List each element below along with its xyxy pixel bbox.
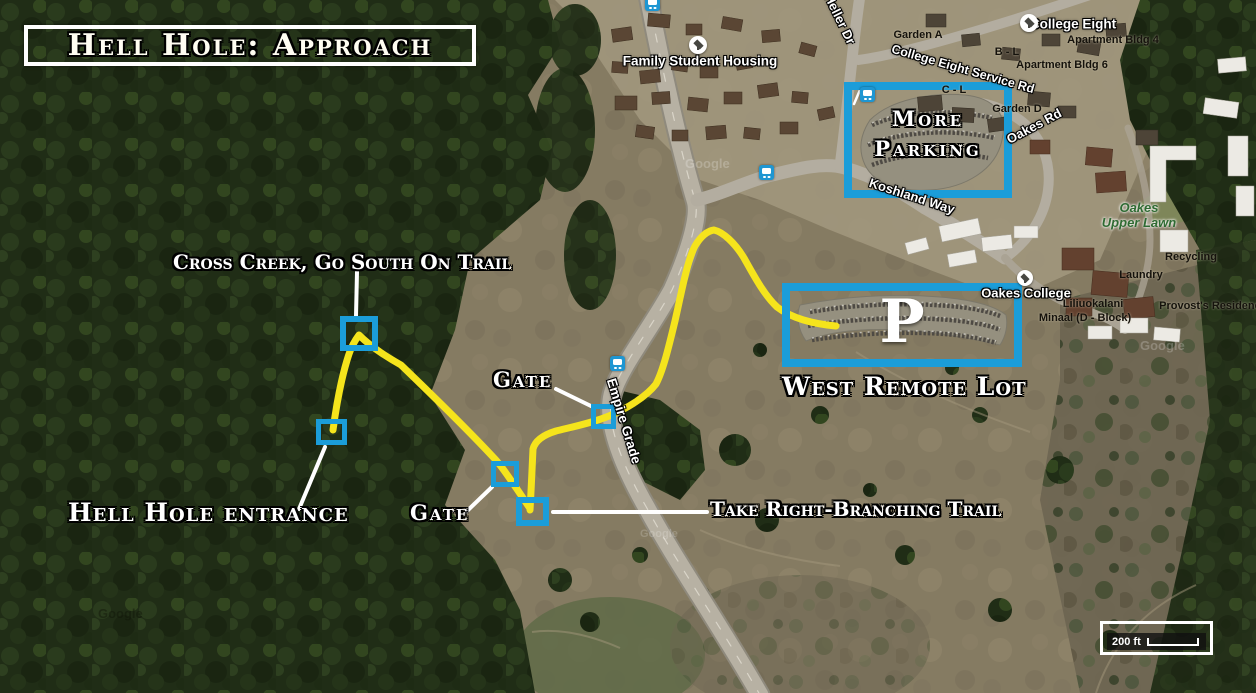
more-parking-line1: More bbox=[844, 104, 1012, 134]
watermark-text: Google bbox=[640, 528, 678, 540]
label-college-eight: College Eight bbox=[1030, 17, 1116, 32]
page-title: Hell Hole: Approach bbox=[28, 29, 472, 62]
label-apartment-bldg-6: Apartment Bldg 6 bbox=[1016, 59, 1108, 71]
west-remote-lot-label: West Remote Lot bbox=[782, 372, 1022, 401]
oakes-upper-lawn-line1: Oakes bbox=[1102, 200, 1176, 215]
oakes-upper-lawn-line2: Upper Lawn bbox=[1102, 215, 1176, 230]
label-family-student-housing: Family Student Housing bbox=[623, 54, 778, 69]
map-canvas: Google Google Google Google Hell Hole: A… bbox=[0, 0, 1256, 693]
label-liliuokalani: Liliuokalani bbox=[1063, 298, 1124, 310]
bus-stop-icon bbox=[759, 165, 774, 180]
more-parking-line2: Parking bbox=[844, 134, 1012, 164]
label-b-l: B - L bbox=[995, 46, 1019, 58]
label-minaal-d-block: Minaal (D - Block) bbox=[1039, 312, 1131, 324]
cross-creek-label: Cross Creek, Go South On Trail bbox=[173, 250, 511, 274]
scale-bracket bbox=[1147, 638, 1199, 646]
label-laundry: Laundry bbox=[1119, 269, 1162, 281]
label-provosts-residence: Provost's Residence bbox=[1159, 300, 1256, 312]
more-parking-label: More Parking bbox=[844, 104, 1012, 164]
box-cross-creek bbox=[340, 316, 378, 351]
box-trail-junction bbox=[516, 497, 549, 526]
label-oakes-college: Oakes College bbox=[981, 286, 1071, 301]
label-garden-d: Garden D bbox=[992, 103, 1042, 115]
label-recycling: Recycling bbox=[1165, 251, 1217, 263]
watermark-text: Google bbox=[685, 156, 730, 171]
watermark-text: Google bbox=[1140, 338, 1185, 353]
scale-bar-inner: 200 ft bbox=[1107, 633, 1206, 650]
graduation-cap-icon bbox=[689, 36, 707, 54]
gate-lower-label: Gate bbox=[410, 500, 469, 525]
bus-stop-icon bbox=[610, 356, 625, 371]
title-box: Hell Hole: Approach bbox=[24, 25, 476, 66]
graduation-cap-icon bbox=[1017, 270, 1033, 286]
label-apartment-bldg-4: Apartment Bldg 4 bbox=[1067, 34, 1159, 46]
label-c-l: C - L bbox=[942, 84, 966, 96]
bus-stop-icon bbox=[645, 0, 660, 11]
take-right-label: Take Right-Branching Trail bbox=[710, 497, 1001, 521]
label-garden-a: Garden A bbox=[893, 29, 942, 41]
box-gate-lower bbox=[491, 461, 519, 487]
bus-stop-icon bbox=[860, 87, 875, 102]
label-oakes-upper-lawn: Oakes Upper Lawn bbox=[1102, 200, 1176, 230]
map-scale-bar: 200 ft bbox=[1100, 621, 1213, 655]
scale-label: 200 ft bbox=[1112, 636, 1141, 648]
graduation-cap-icon bbox=[1020, 14, 1038, 32]
hell-hole-entrance-label: Hell Hole entrance bbox=[68, 498, 349, 527]
watermark-text: Google bbox=[98, 606, 143, 621]
box-hell-hole-entrance bbox=[316, 419, 347, 445]
satellite-map: Google Google Google Google bbox=[0, 0, 1256, 693]
gate-upper-label: Gate bbox=[493, 367, 552, 392]
